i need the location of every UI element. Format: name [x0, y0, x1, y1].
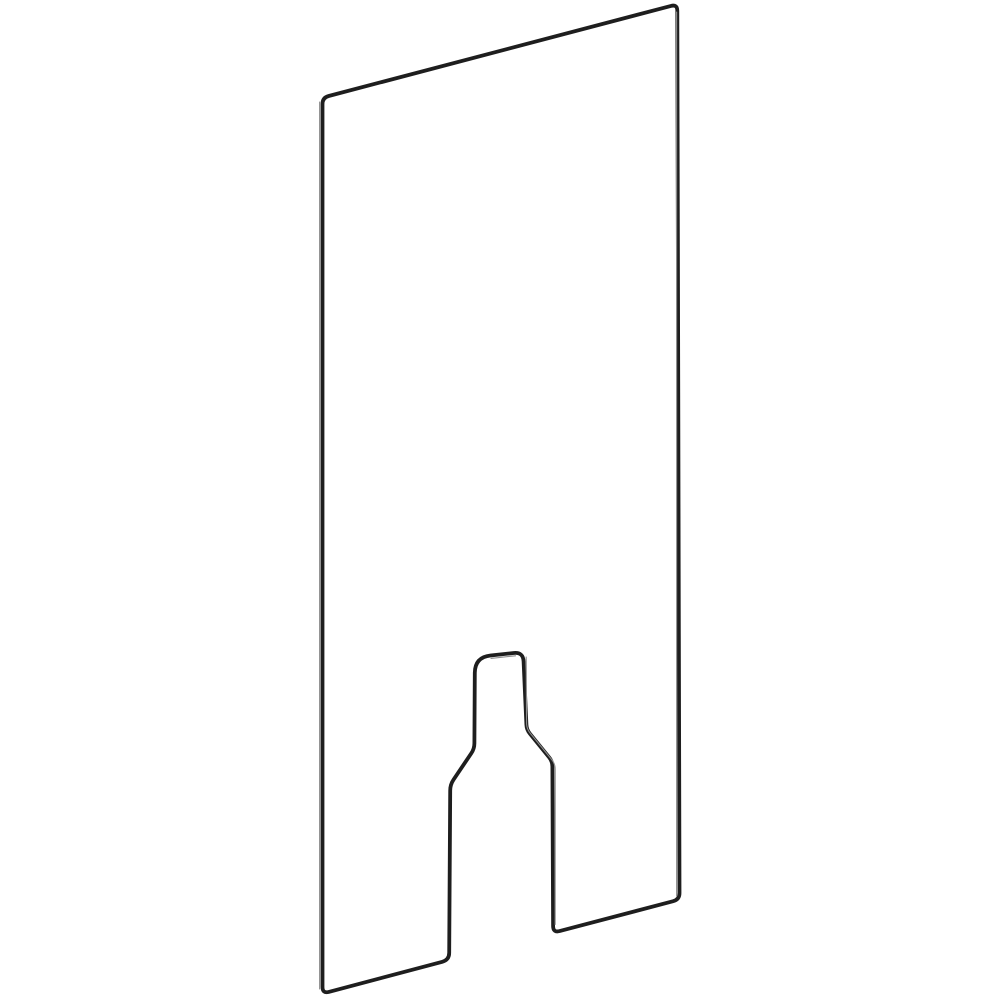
- panel-technical-drawing: [0, 0, 1000, 1000]
- illustration-canvas: [0, 0, 1000, 1000]
- panel-outline-with-cutout: [323, 6, 680, 993]
